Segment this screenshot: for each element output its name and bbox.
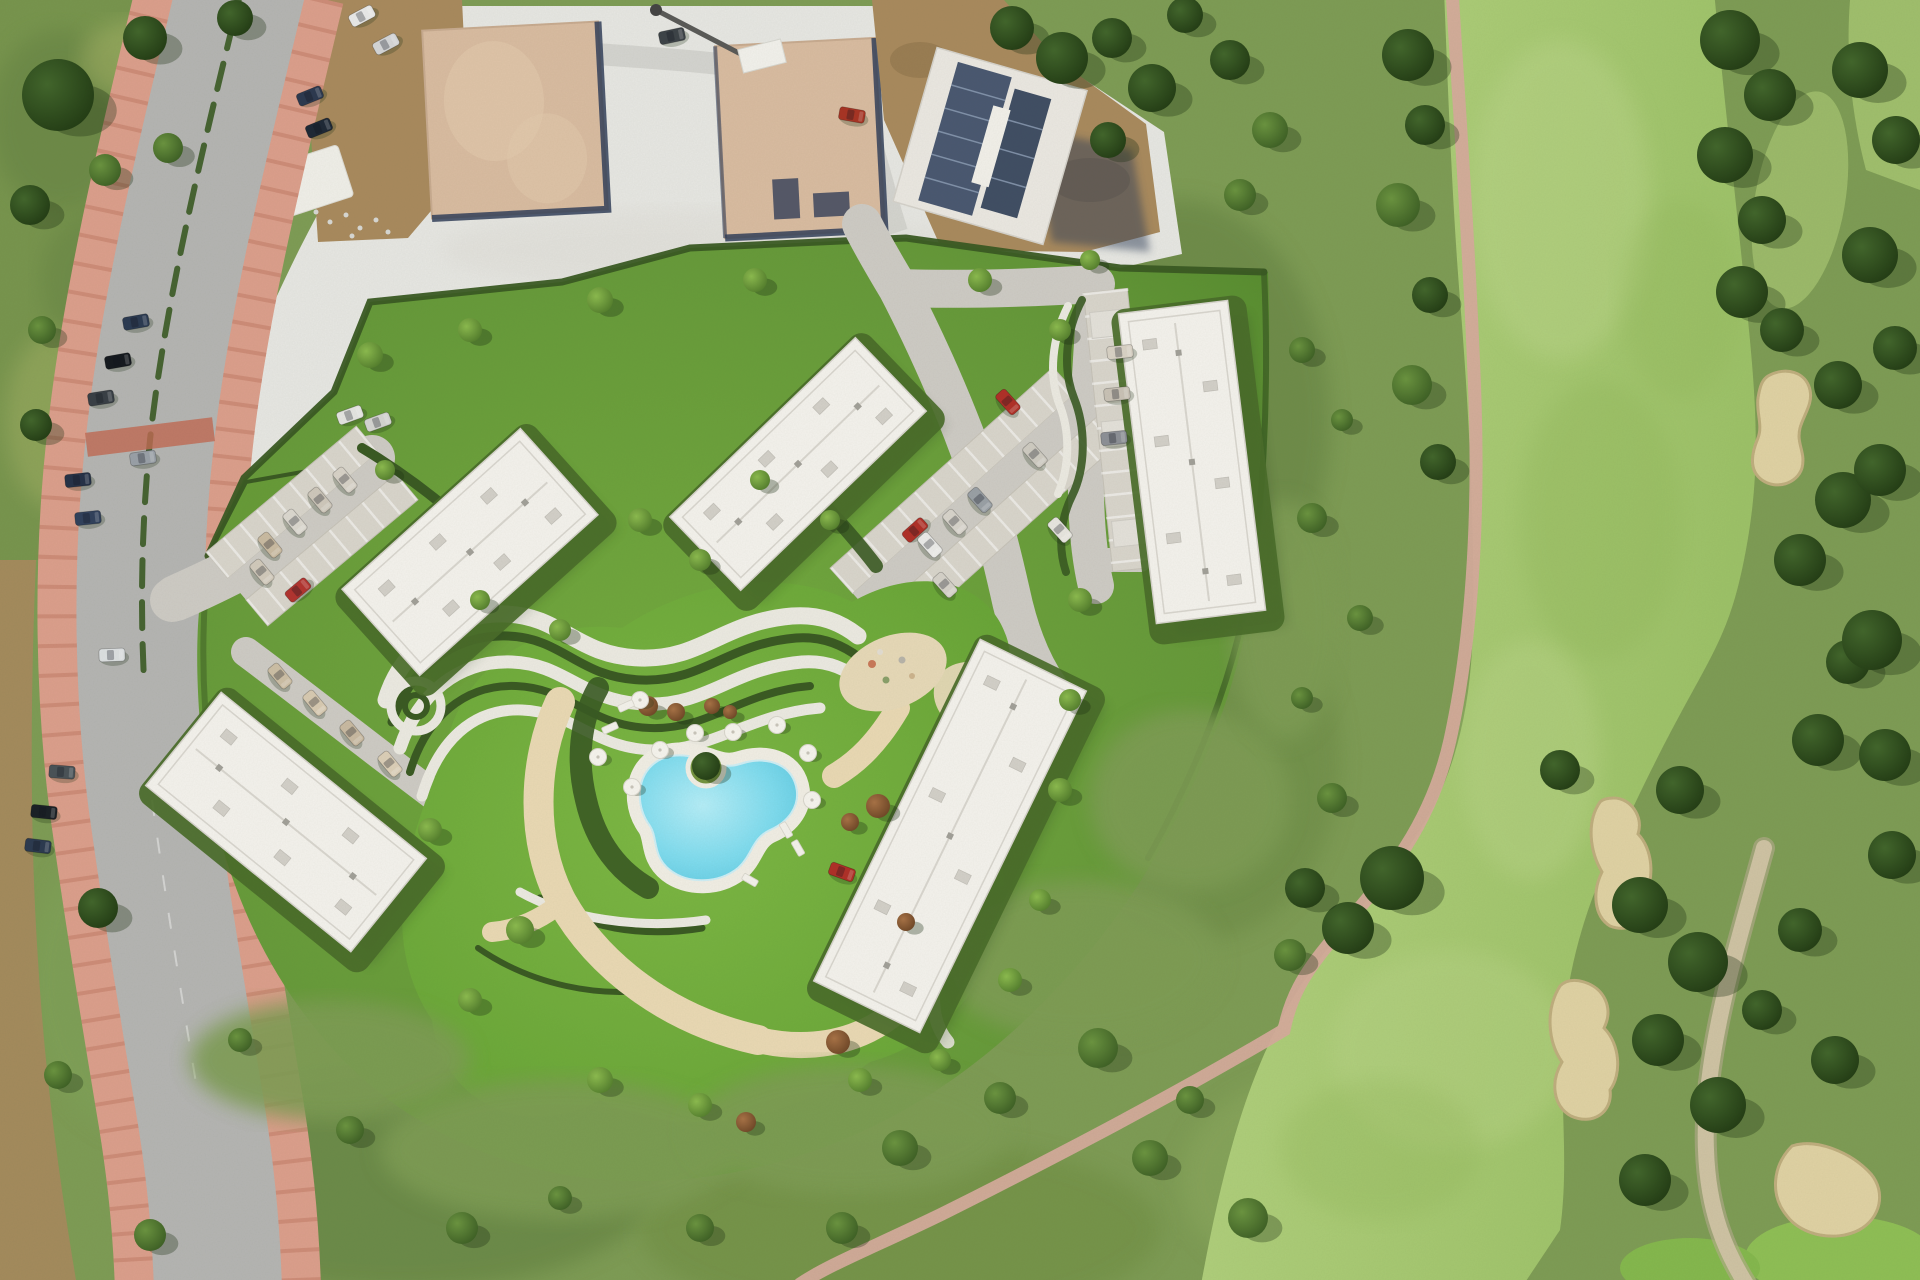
photo-grain bbox=[0, 0, 1920, 1280]
aerial-view bbox=[0, 0, 1920, 1280]
aerial-photo bbox=[0, 0, 1920, 1280]
